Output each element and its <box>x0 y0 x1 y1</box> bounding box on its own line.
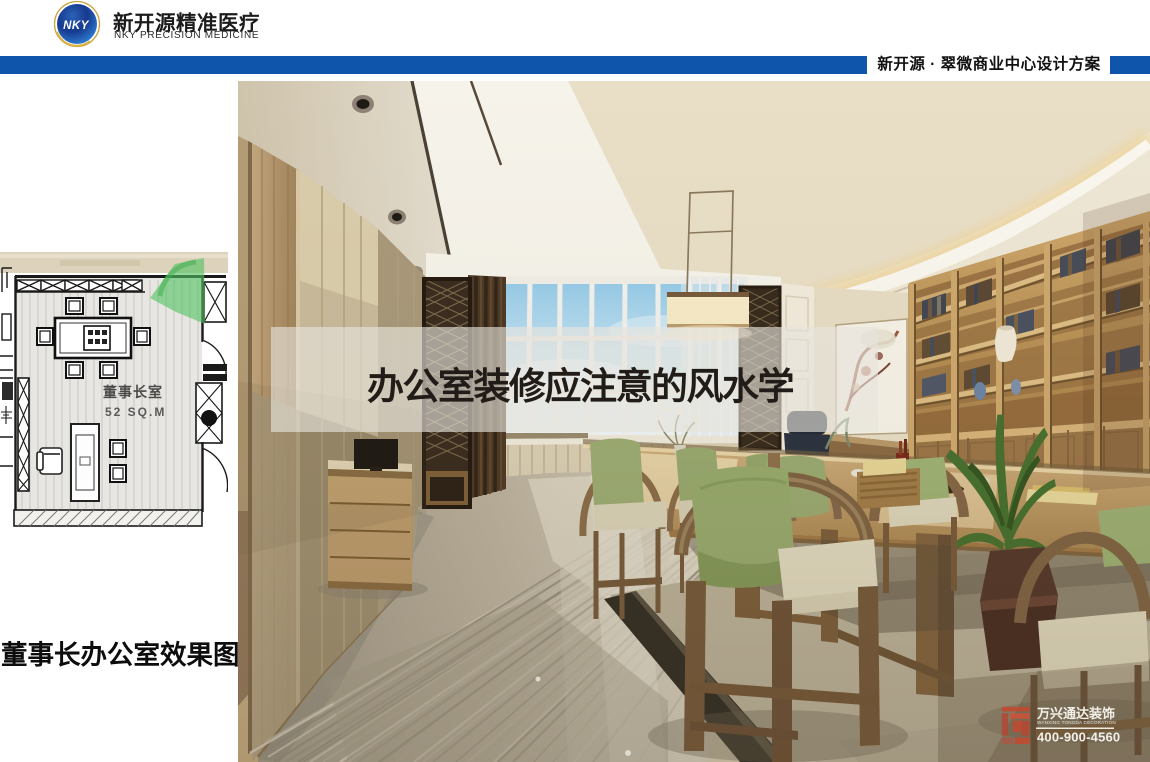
svg-text:董事长室: 董事长室 <box>103 384 163 400</box>
svg-text:WANXING TONGDA DECORATION: WANXING TONGDA DECORATION <box>1037 720 1116 725</box>
svg-text:400-900-4560: 400-900-4560 <box>1037 730 1120 745</box>
svg-text:52 SQ.M: 52 SQ.M <box>105 405 166 419</box>
svg-text:NKY: NKY <box>63 20 90 32</box>
svg-text:万兴通达装饰: 万兴通达装饰 <box>1036 706 1115 721</box>
